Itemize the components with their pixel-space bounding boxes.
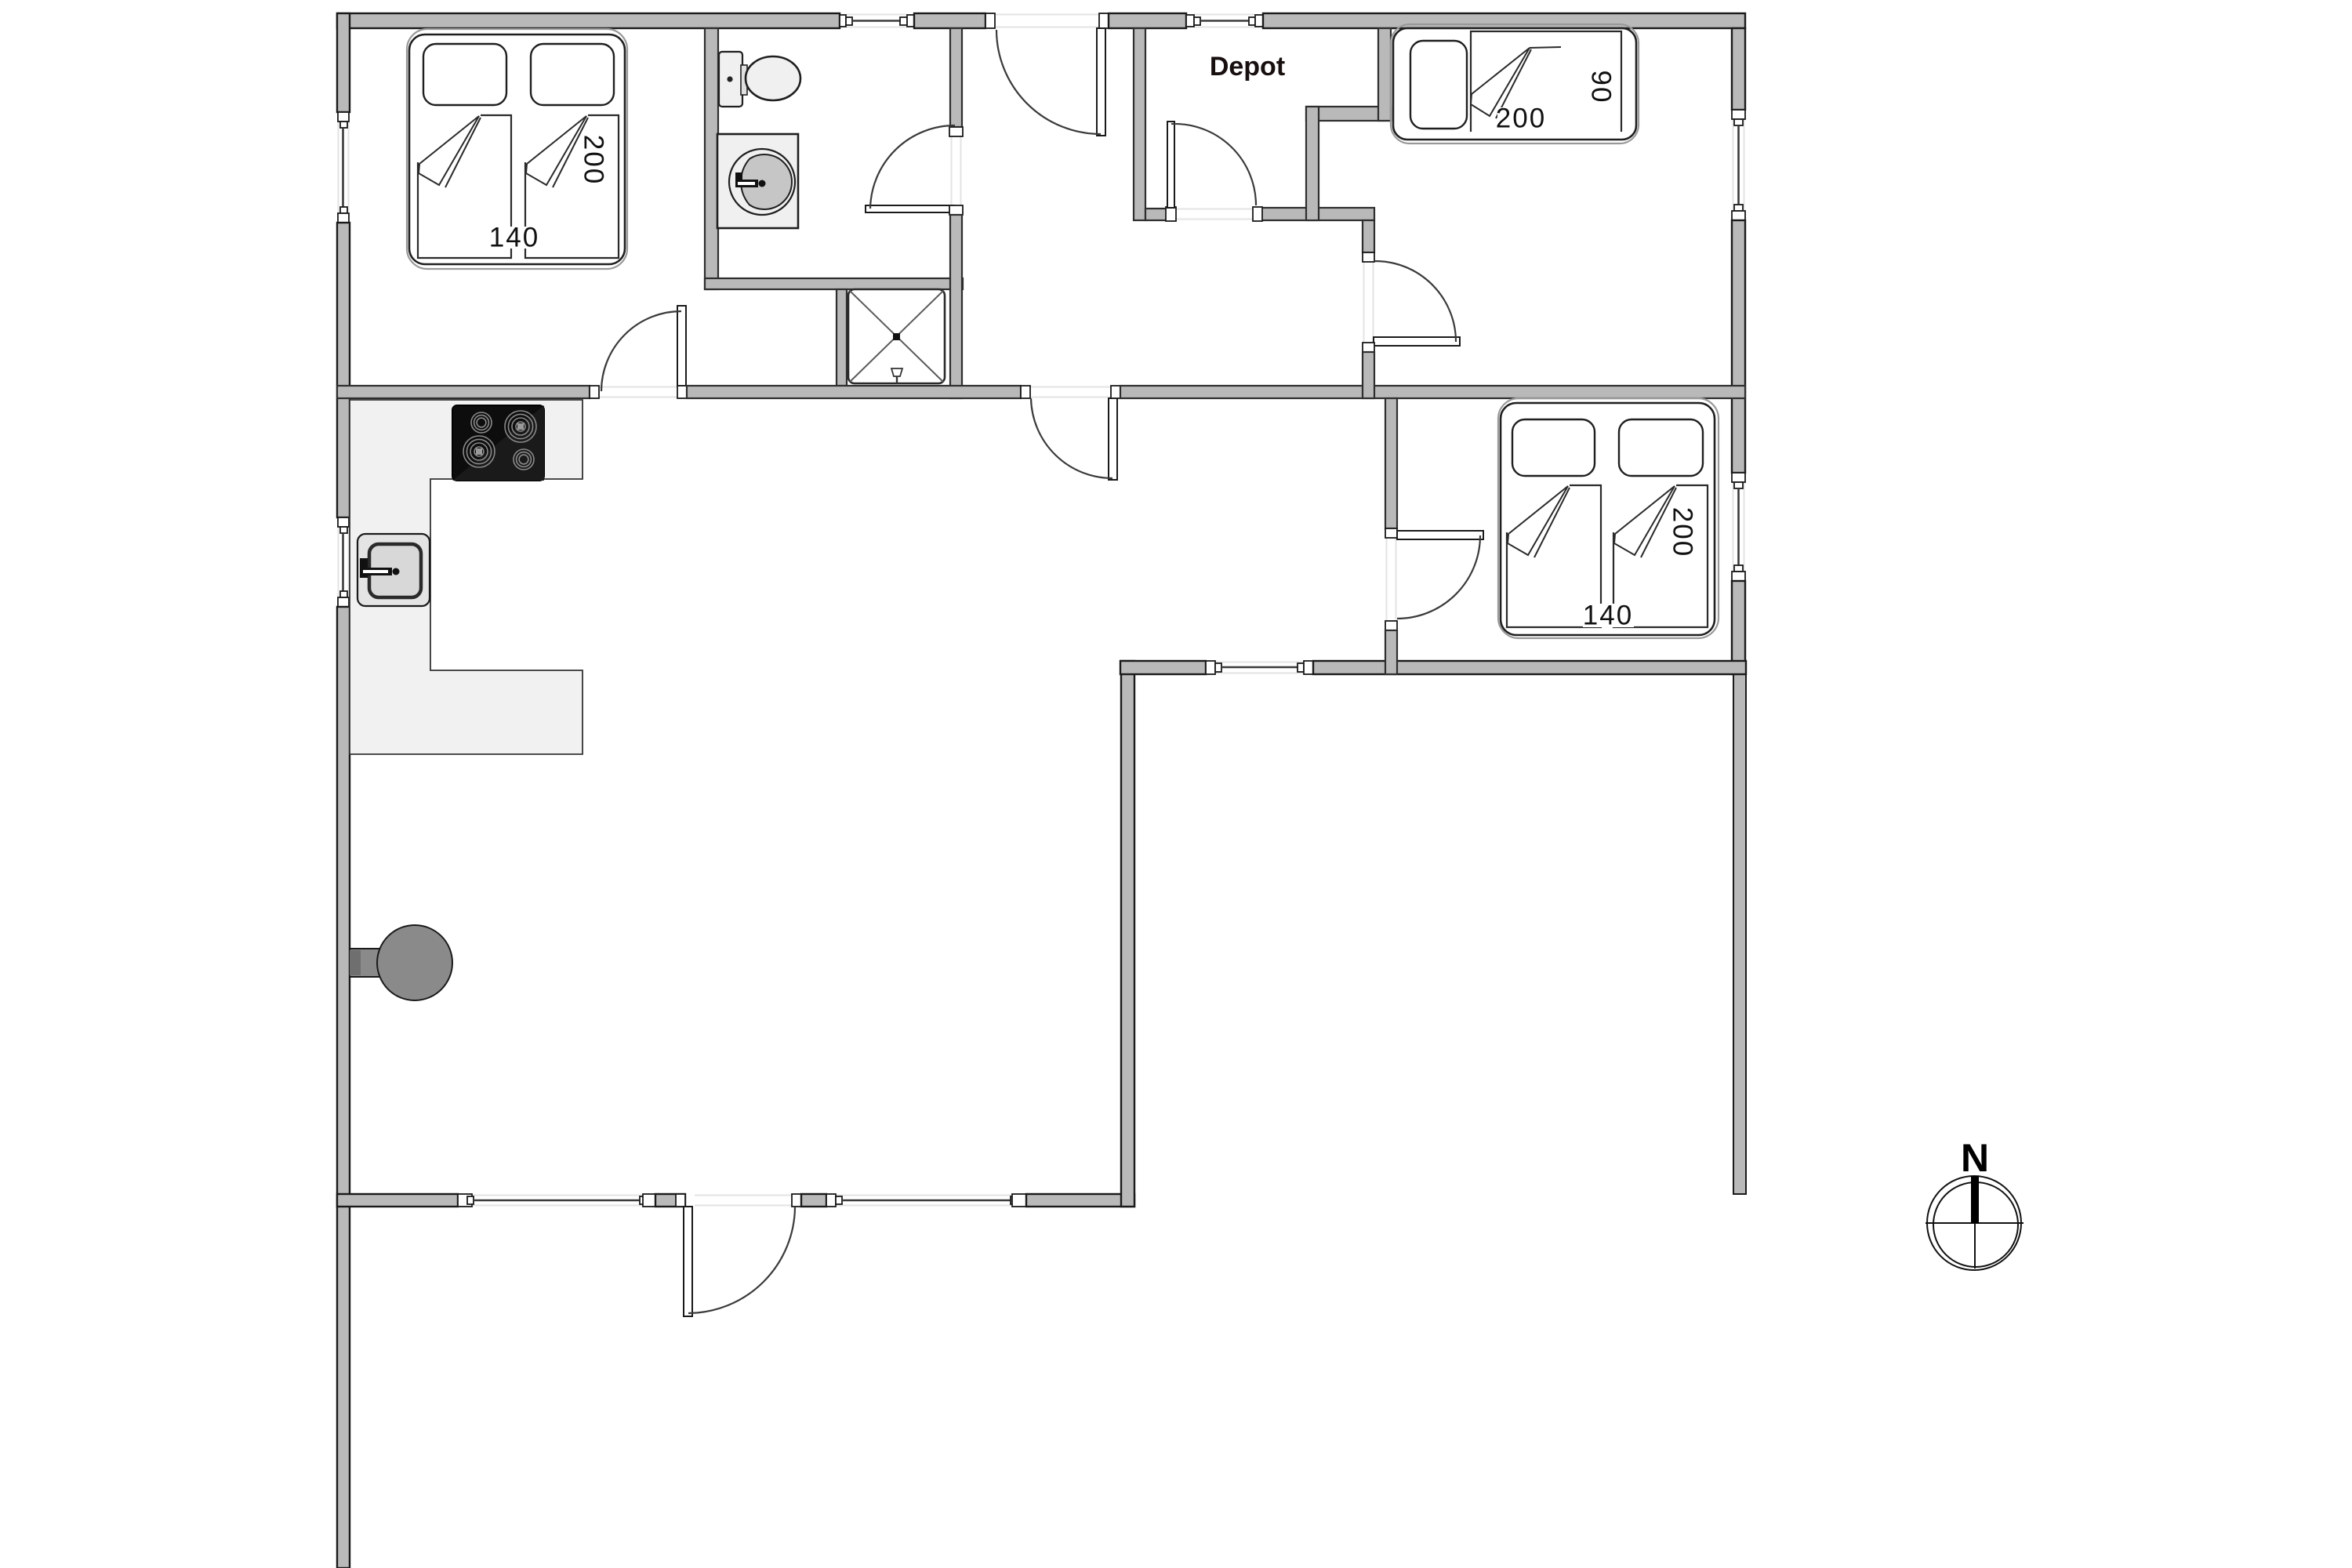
svg-text:N: N [1961,1136,1989,1180]
svg-text:200: 200 [1668,507,1698,557]
svg-text:200: 200 [579,135,609,185]
svg-text:140: 140 [489,223,539,253]
svg-text:200: 200 [1496,103,1546,134]
svg-text:140: 140 [1583,601,1633,631]
svg-text:Depot: Depot [1210,52,1285,82]
svg-text:90: 90 [1586,71,1617,104]
